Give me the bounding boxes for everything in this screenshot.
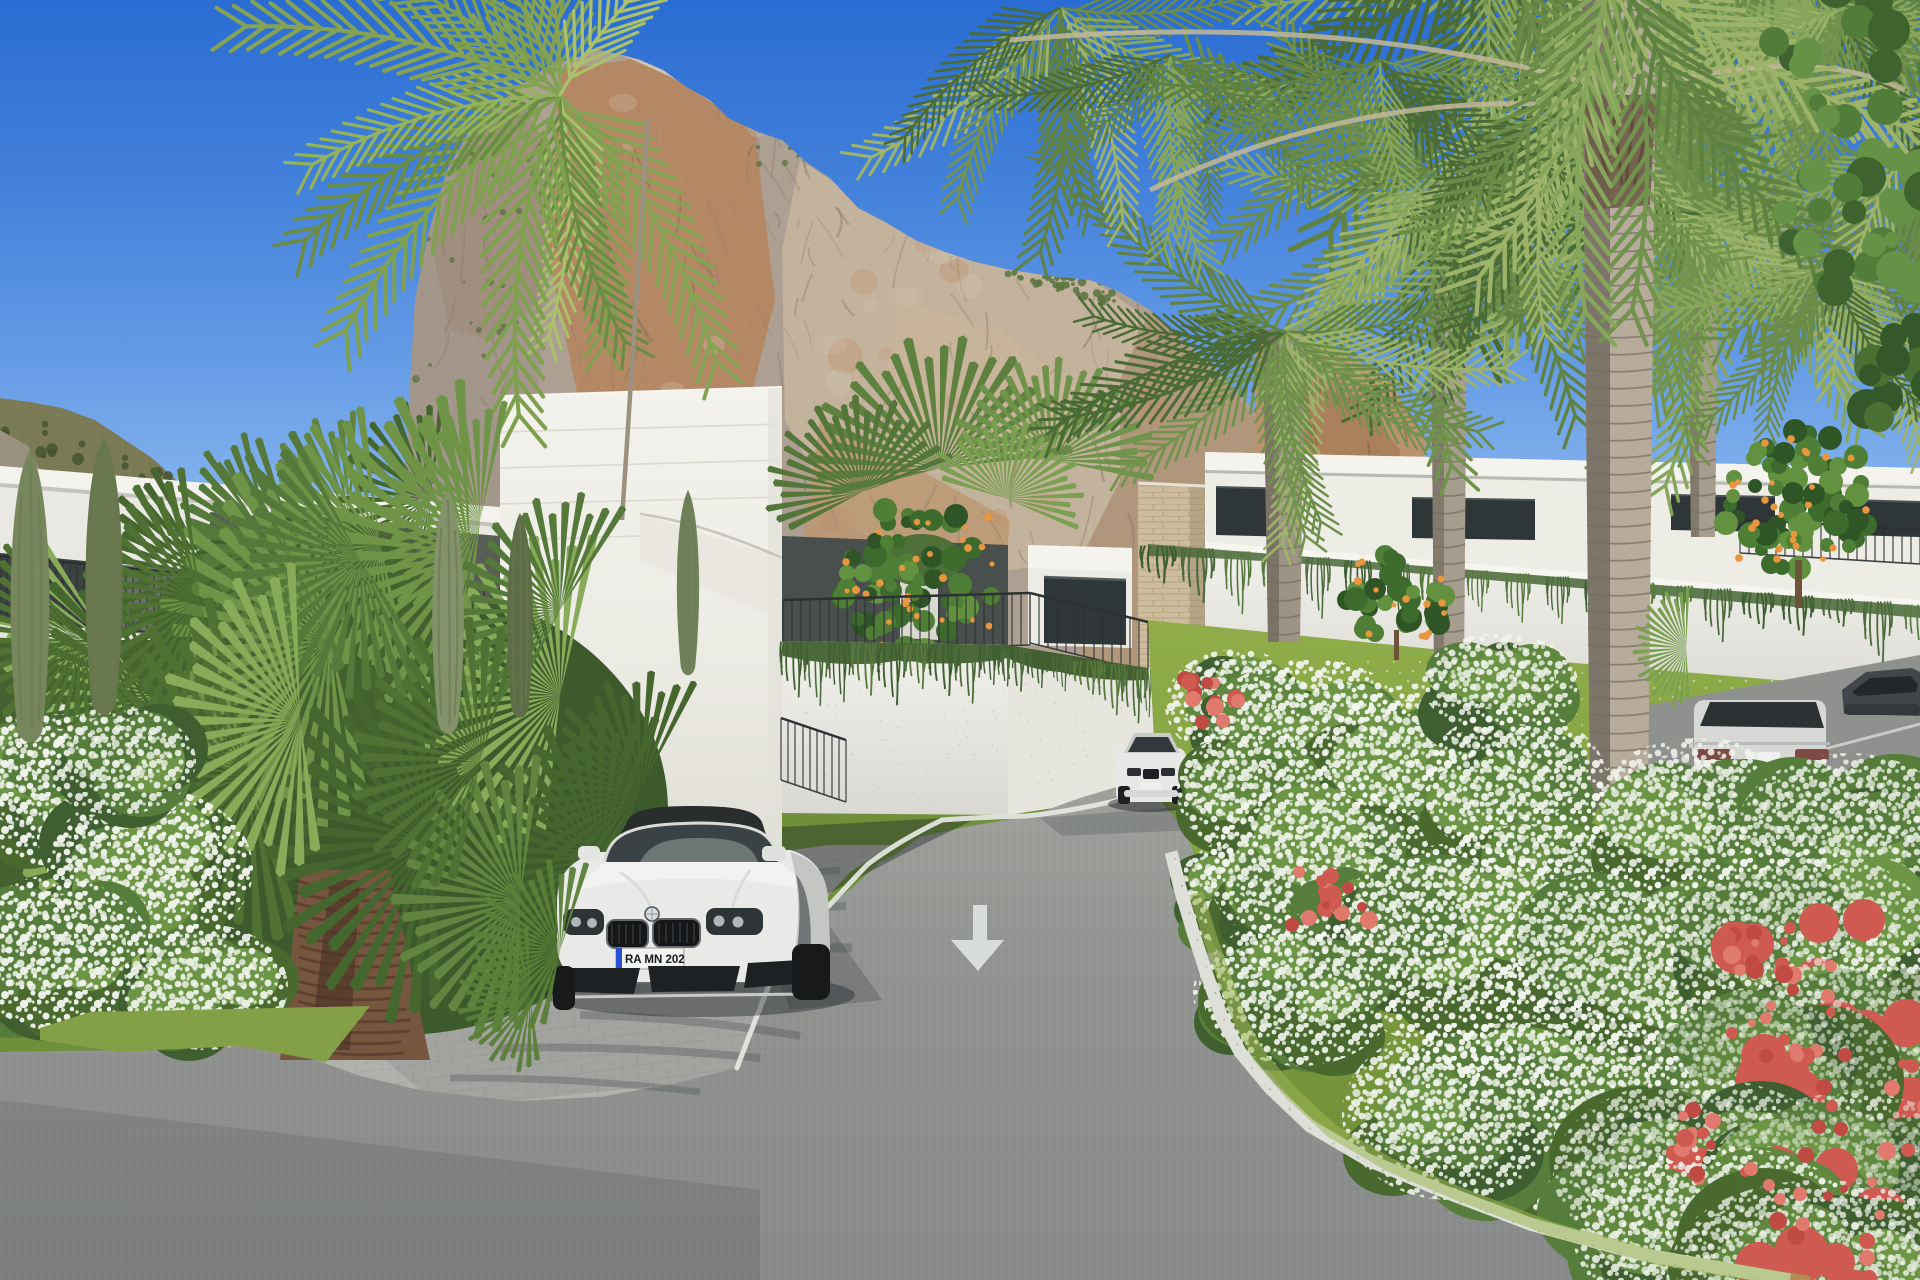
svg-text:RA MN 202: RA MN 202 [625,954,685,966]
